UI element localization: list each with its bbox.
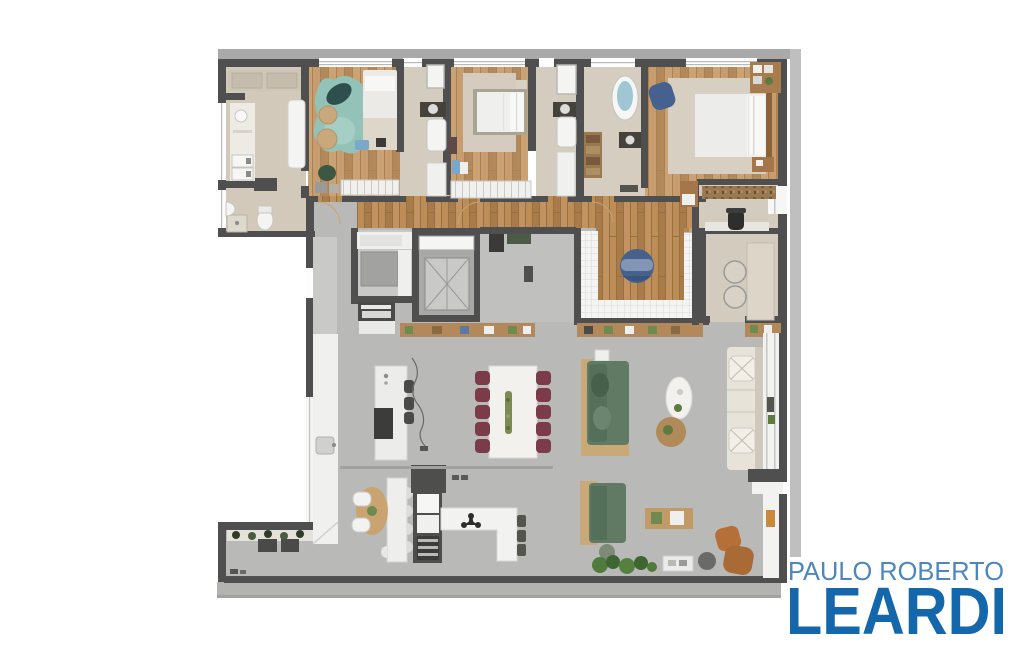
svg-text:LEARDI: LEARDI	[786, 574, 1007, 649]
